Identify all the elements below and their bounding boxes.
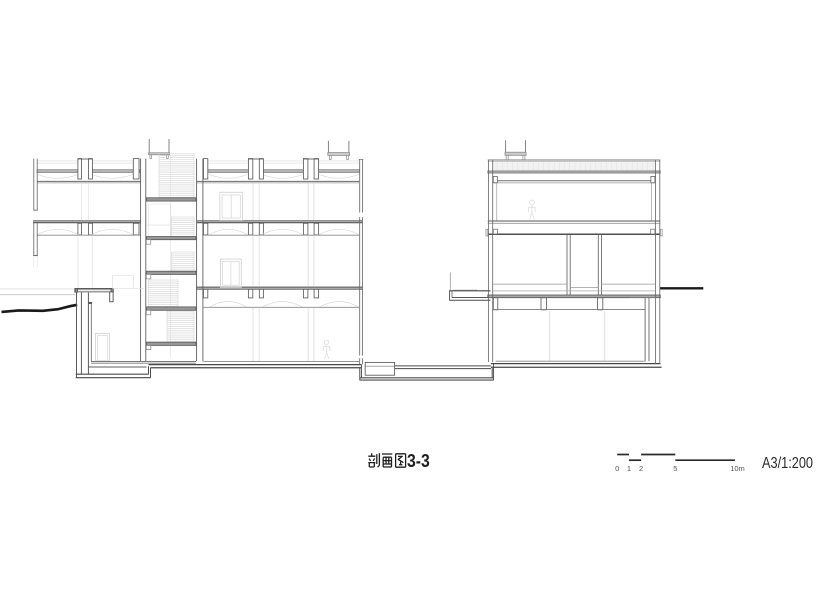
svg-text:1: 1 (627, 464, 631, 473)
svg-text:10m: 10m (730, 464, 745, 473)
svg-text:A3/1:200: A3/1:200 (762, 455, 813, 472)
svg-text:0: 0 (615, 464, 619, 473)
svg-text:5: 5 (673, 464, 677, 473)
svg-text:2: 2 (639, 464, 643, 473)
svg-text:3-3: 3-3 (407, 450, 430, 471)
